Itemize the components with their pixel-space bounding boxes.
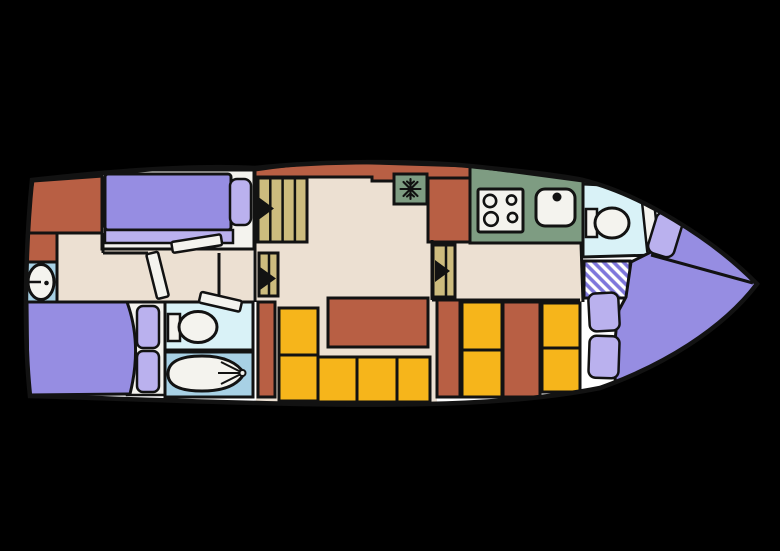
v-berth-pillow-bottom [588,335,619,378]
bow-toilet-bowl-icon [595,208,629,238]
main-stairs [257,178,307,242]
sideboard-column [428,178,470,242]
sofa-side-cabinet [258,302,275,397]
lower-stairs [259,253,278,296]
floorplan-canvas [0,0,780,551]
starboard-cabinets [437,300,580,397]
stove-icon [478,189,523,232]
saloon-table [328,298,428,347]
aft-toilet-bowl-icon [179,312,217,343]
single-berth-mattress [105,174,231,230]
freezer-snowflake-icon [401,179,421,199]
double-berth-pillow-bottom [137,351,159,392]
double-berth-mattress [27,302,136,395]
aft-wardrobe [24,176,103,233]
double-berth-pillow-top [137,306,159,348]
v-berth-pillow-left [588,292,620,332]
bow-stairs [433,245,455,297]
boat-floorplan [0,0,780,551]
galley-faucet-icon [553,193,562,202]
washbasin-drain-icon [44,281,49,286]
single-berth-pillow [230,179,251,225]
